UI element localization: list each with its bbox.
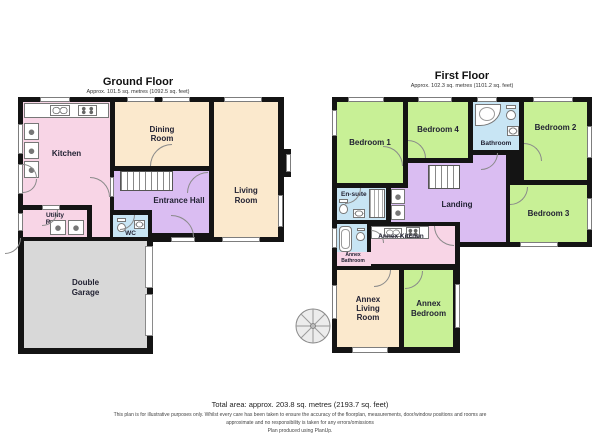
first-floor-subtitle: Approx. 102.3 sq. metres (1101.2 sq. fee… (352, 83, 572, 89)
window-annex-bottom (352, 347, 388, 353)
room-annex-living: Annex Living Room (337, 270, 399, 347)
room-entrance-hall-label: Entrance Hall (140, 196, 218, 205)
garage-door (145, 246, 153, 288)
room-living: Living Room (214, 102, 278, 237)
total-area-text: Total area: approx. 203.8 sq. metres (21… (0, 400, 600, 409)
room-landing-lower (460, 222, 506, 242)
ground-floor-title: Ground Floor (28, 76, 248, 88)
window-living-right (278, 195, 283, 227)
first-floor-header: First Floor Approx. 102.3 sq. metres (11… (352, 70, 572, 89)
window-kitchen-left (18, 124, 23, 154)
room-garage: Double Garage (24, 241, 147, 348)
utility-washer-icon (50, 220, 66, 235)
window-bedroom2-right (587, 126, 592, 158)
window-annex-bedroom-right (455, 284, 460, 328)
kitchen-appliance-icon (24, 123, 39, 140)
room-kitchen-label: Kitchen (52, 149, 81, 158)
ground-floor-subtitle: Approx. 101.5 sq. metres (1092.5 sq. fee… (28, 89, 248, 95)
room-bedroom-2: Bedroom 2 (524, 102, 587, 180)
bathroom-sink-icon (507, 126, 519, 136)
room-annex-bathroom-label: Annex Bathroom (333, 253, 373, 265)
en-suite-toilet-icon (339, 204, 348, 214)
window-dining-top (127, 97, 155, 102)
bathroom-toilet-icon (506, 110, 516, 120)
room-garage-label: Double Garage (62, 278, 110, 296)
footer: Total area: approx. 203.8 sq. metres (21… (0, 400, 600, 434)
room-annex-living-label: Annex Living Room (350, 295, 386, 323)
spiral-staircase-icon (294, 307, 332, 345)
room-landing-label: Landing (441, 200, 472, 209)
disclaimer-text: This plan is for illustrative purposes o… (100, 412, 500, 427)
room-bedroom-4-label: Bedroom 4 (417, 125, 459, 134)
window-kitchen-top (40, 97, 70, 102)
room-annex-kitchen-label: Annex Kitchen (369, 233, 433, 240)
room-bathroom-label: Bathroom (481, 140, 512, 147)
landing-cupboard-icon (391, 189, 405, 204)
kitchen-sink-icon (50, 105, 70, 116)
staircase-ground (120, 171, 173, 191)
utility-washer-icon (68, 220, 84, 235)
en-suite-sink-icon (353, 209, 365, 218)
bathroom-toilet-icon (506, 105, 516, 109)
wc-sink-icon (134, 220, 145, 229)
window-utility-left (18, 213, 23, 231)
window-bedroom4-top (418, 97, 452, 102)
annex-toilet-icon (357, 228, 365, 231)
window-bathroom-top (477, 97, 497, 102)
front-door-opening (171, 237, 195, 242)
room-bedroom-2-label: Bedroom 2 (535, 123, 577, 132)
staircase-first (428, 165, 460, 189)
landing-cupboard-icon (391, 205, 405, 220)
credit-text: Plan produced using PlanUp. (0, 428, 600, 434)
window-bedroom2-top (533, 97, 573, 102)
floorplan-canvas: Ground Floor Approx. 101.5 sq. metres (1… (0, 0, 600, 437)
window-bedroom1-top (348, 97, 384, 102)
window-bedroom3-bottom (520, 242, 558, 247)
room-wc-label: WC (125, 230, 136, 237)
en-suite-shower-icon (369, 189, 385, 218)
room-kitchen-extension (92, 205, 110, 237)
garage-door (145, 294, 153, 336)
first-floor-title: First Floor (352, 70, 572, 82)
window-dining-top (162, 97, 190, 102)
window-fireplace (286, 154, 291, 172)
annex-toilet-icon (356, 232, 365, 241)
room-bedroom-3-label: Bedroom 3 (528, 209, 570, 218)
window-living-top (224, 97, 262, 102)
annex-bath-icon (341, 229, 350, 249)
room-annex-bedroom-label: Annex Bedroom (405, 299, 453, 317)
window-living-bottom (222, 237, 260, 242)
room-bedroom-1: Bedroom 1 (337, 102, 403, 183)
opening-kitchen-hall (110, 177, 114, 197)
window-annex-bathroom-left (332, 228, 337, 248)
kitchen-appliance-icon (24, 142, 39, 159)
window-annex-living-left (332, 285, 337, 319)
room-living-label: Living Room (226, 186, 266, 204)
kitchen-hob-icon (78, 105, 97, 116)
ground-floor-header: Ground Floor Approx. 101.5 sq. metres (1… (28, 76, 248, 95)
bathroom-corner-bath-icon (479, 107, 495, 121)
room-dining-label: Dining Room (139, 125, 185, 143)
window-bedroom3-right (587, 198, 592, 230)
window-bedroom1-left (332, 110, 337, 136)
